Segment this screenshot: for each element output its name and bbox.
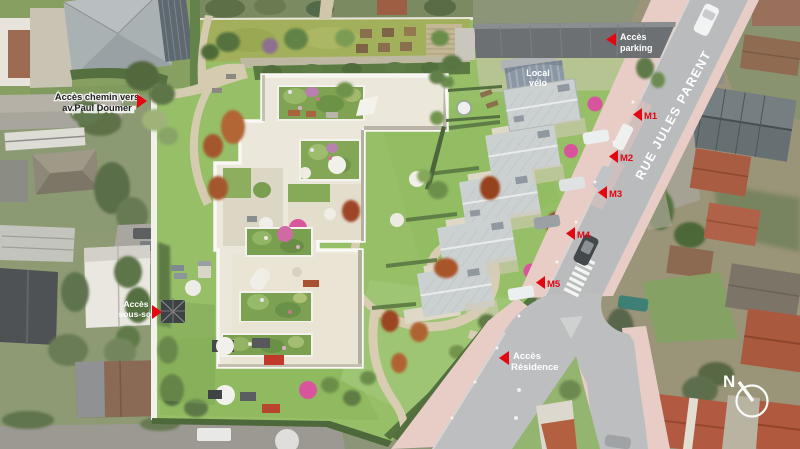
svg-text:sous-sol: sous-sol [119, 309, 154, 319]
svg-text:vélo: vélo [529, 78, 548, 88]
svg-text:M4: M4 [577, 230, 591, 241]
svg-text:M5: M5 [547, 279, 561, 290]
svg-text:M2: M2 [620, 153, 633, 164]
svg-text:Local: Local [526, 68, 550, 78]
svg-text:Accès: Accès [123, 299, 148, 309]
svg-text:Accès: Accès [620, 32, 647, 42]
svg-text:N: N [723, 372, 735, 391]
svg-text:parking: parking [620, 43, 653, 53]
svg-text:M1: M1 [644, 111, 658, 122]
svg-text:Résidence: Résidence [511, 362, 559, 373]
svg-text:av.Paul Doumer: av.Paul Doumer [62, 103, 132, 113]
svg-text:Accès: Accès [513, 351, 541, 362]
svg-text:Accès chemin vers: Accès chemin vers [55, 92, 139, 102]
svg-text:M3: M3 [609, 189, 622, 200]
